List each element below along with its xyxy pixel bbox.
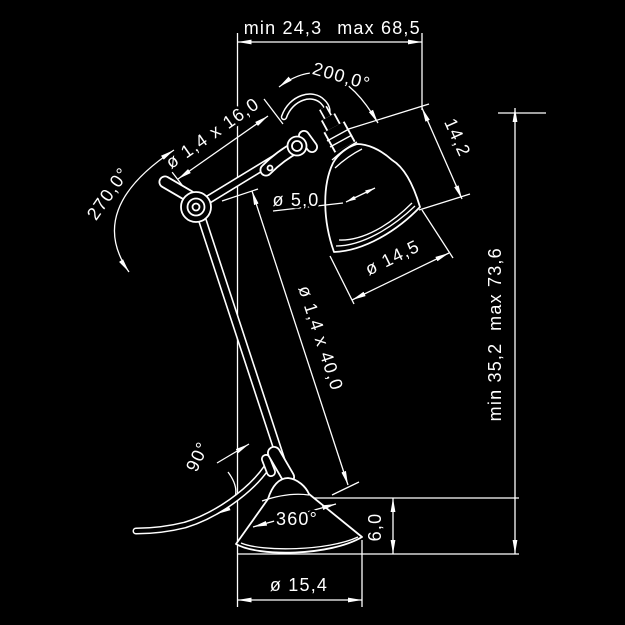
base-swivel-label: 360° <box>276 509 318 529</box>
technical-drawing-canvas: min 24,3 max 68,5 200,0° ø 1,4 x 16,0 27… <box>0 0 625 625</box>
width-min-label: min 24,3 <box>244 18 323 38</box>
height-min-label: min 35,2 <box>485 343 505 422</box>
elbow-joint <box>181 192 211 222</box>
height-max-label: max 73,6 <box>485 247 505 331</box>
base-height-label: 6,0 <box>365 513 385 542</box>
base-diameter-label: ø 15,4 <box>270 575 328 595</box>
lamp-technical-drawing: min 24,3 max 68,5 200,0° ø 1,4 x 16,0 27… <box>0 0 625 625</box>
width-max-label: max 68,5 <box>337 18 421 38</box>
head-joint-boss <box>288 137 307 156</box>
socket-diameter-label: ø 5,0 <box>272 190 319 210</box>
socket-collar-inner <box>328 117 334 128</box>
